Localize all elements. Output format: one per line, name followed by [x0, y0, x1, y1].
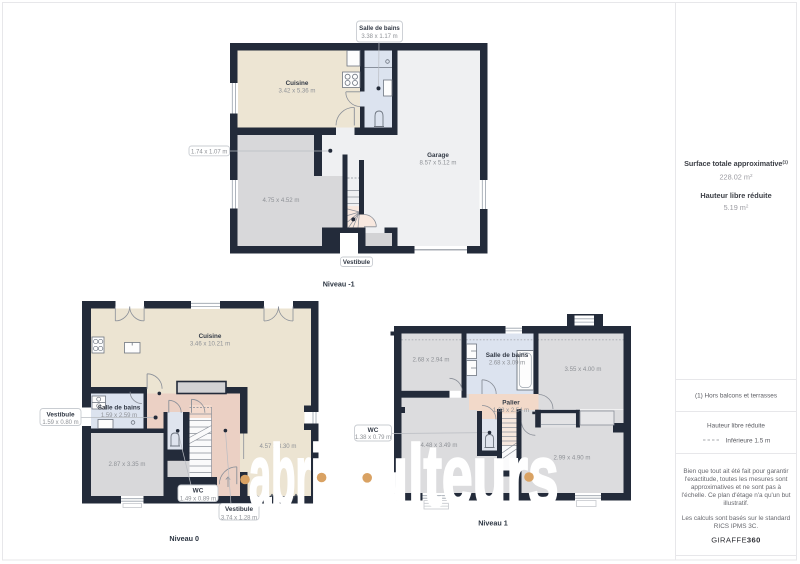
- svg-text:1.59 x 2.59 m: 1.59 x 2.59 m: [101, 413, 137, 419]
- svg-text:Surface totale approximative(1: Surface totale approximative(1): [684, 159, 788, 168]
- svg-text:5.19 m2: 5.19 m2: [724, 203, 749, 212]
- svg-text:Vestibule: Vestibule: [46, 412, 75, 419]
- svg-text:Hauteur libre réduite: Hauteur libre réduite: [700, 191, 771, 200]
- svg-text:(1) Hors balcons et terrasses: (1) Hors balcons et terrasses: [695, 393, 777, 400]
- svg-text:approximatives et ne sont pas: approximatives et ne sont pas à: [691, 484, 782, 491]
- svg-text:Bien que tout ait été fait pou: Bien que tout ait été fait pour garantir: [683, 468, 789, 475]
- svg-text:3.42 x 5.36 m: 3.42 x 5.36 m: [279, 88, 316, 95]
- svg-text:1.74 x 1.07 m: 1.74 x 1.07 m: [191, 149, 227, 155]
- svg-text:Palier: Palier: [502, 400, 520, 407]
- svg-text:Salle de bains: Salle de bains: [486, 352, 529, 359]
- svg-text:8.57 x 5.12 m: 8.57 x 5.12 m: [420, 160, 457, 167]
- svg-text:2.68 x 2.94 m: 2.68 x 2.94 m: [413, 357, 450, 364]
- svg-text:228.02 m2: 228.02 m2: [720, 173, 753, 182]
- svg-text:GIRAFFE360: GIRAFFE360: [711, 536, 761, 545]
- svg-text:3.46 x 10.21 m: 3.46 x 10.21 m: [190, 341, 230, 348]
- svg-text:Les calculs sont basés sur le: Les calculs sont basés sur le standard: [682, 515, 791, 522]
- svg-text:1.59 x 0.80 m: 1.59 x 0.80 m: [42, 420, 78, 426]
- svg-text:3.38 x 1.17 m: 3.38 x 1.17 m: [361, 34, 397, 40]
- svg-text:Niveau 0: Niveau 0: [169, 534, 199, 543]
- svg-text:3.55 x 4.00 m: 3.55 x 4.00 m: [565, 366, 602, 373]
- svg-text:Cuisine: Cuisine: [199, 333, 222, 340]
- svg-text:l'exactitude, toutes les mesur: l'exactitude, toutes les mesures sont: [685, 476, 788, 483]
- svg-text:Salle de bains: Salle de bains: [98, 405, 141, 412]
- svg-text:Niveau -1: Niveau -1: [323, 280, 355, 289]
- svg-text:WC: WC: [193, 487, 204, 494]
- svg-text:Inférieure 1.5 m: Inférieure 1.5 m: [726, 438, 771, 445]
- svg-text:abri: abri: [249, 428, 322, 524]
- svg-text:RICS IPMS 3C.: RICS IPMS 3C.: [714, 523, 759, 530]
- svg-text:Vestibule: Vestibule: [343, 259, 371, 266]
- svg-text:l'échelle. Ce plan d'étage n'a: l'échelle. Ce plan d'étage n'a qu'un but: [682, 492, 791, 499]
- svg-text:2.68 x 3.09 m: 2.68 x 3.09 m: [489, 361, 525, 367]
- svg-text:2.87 x 3.35 m: 2.87 x 3.35 m: [109, 461, 146, 468]
- svg-text:Garage: Garage: [427, 152, 449, 159]
- svg-text:Salle de bains: Salle de bains: [359, 25, 400, 32]
- svg-text:1.49 x 0.89 m: 1.49 x 0.89 m: [180, 497, 216, 503]
- svg-text:Hauteur libre réduite: Hauteur libre réduite: [707, 423, 765, 430]
- svg-text:illustratif.: illustratif.: [723, 500, 748, 507]
- svg-text:2.99 x 4.90 m: 2.99 x 4.90 m: [554, 455, 591, 462]
- svg-text:4.75 x 4.52 m: 4.75 x 4.52 m: [263, 197, 300, 204]
- svg-text:1.08 x 2.54 m: 1.08 x 2.54 m: [493, 408, 529, 414]
- svg-text:Cuisine: Cuisine: [286, 80, 309, 87]
